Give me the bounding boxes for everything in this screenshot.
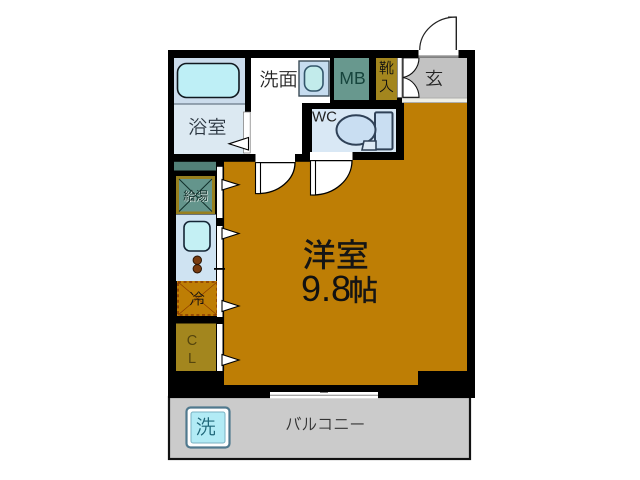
svg-text:9.8: 9.8 [301, 268, 351, 309]
svg-text:WC: WC [312, 108, 337, 125]
svg-text:C: C [187, 333, 197, 349]
svg-text:MB: MB [339, 68, 365, 88]
svg-text:L: L [188, 351, 196, 367]
